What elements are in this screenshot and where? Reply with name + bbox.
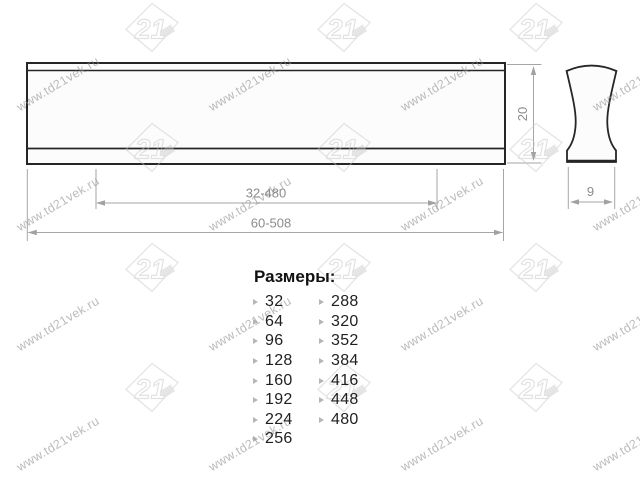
- size-value: 64: [265, 313, 283, 331]
- size-value: 448: [331, 391, 359, 409]
- side-view-profile: [567, 66, 617, 162]
- size-value: 96: [265, 332, 283, 350]
- size-value: 480: [331, 411, 359, 429]
- size-value: 224: [265, 411, 293, 429]
- height-label: 20: [515, 107, 530, 121]
- size-value: 288: [331, 293, 359, 311]
- size-item: 224: [253, 410, 307, 430]
- size-item: 32: [253, 292, 307, 312]
- triangle-bullet-icon: [253, 378, 258, 384]
- size-item: 160: [253, 371, 307, 391]
- depth-label: 9: [587, 184, 594, 199]
- sizes-column-1: 326496128160192224256: [253, 292, 307, 449]
- hole-distance-label: 32-480: [246, 186, 286, 201]
- size-item: 192: [253, 390, 307, 410]
- triangle-bullet-icon: [253, 299, 258, 305]
- triangle-bullet-icon: [253, 319, 258, 325]
- triangle-bullet-icon: [319, 378, 324, 384]
- overall-length-label: 60-508: [251, 216, 291, 231]
- size-value: 256: [265, 430, 293, 448]
- arrow-up-icon: [531, 66, 536, 75]
- arrow-right-icon: [604, 199, 613, 204]
- size-value: 352: [331, 332, 359, 350]
- arrow-down-icon: [531, 152, 536, 161]
- arrow-right-icon: [494, 230, 503, 235]
- size-value: 32: [265, 293, 283, 311]
- triangle-bullet-icon: [319, 397, 324, 403]
- triangle-bullet-icon: [253, 417, 258, 423]
- triangle-bullet-icon: [319, 319, 324, 325]
- size-value: 320: [331, 313, 359, 331]
- triangle-bullet-icon: [319, 338, 324, 344]
- triangle-bullet-icon: [319, 299, 324, 305]
- size-item: 96: [253, 332, 307, 352]
- size-item: 288: [319, 292, 359, 312]
- size-value: 160: [265, 372, 293, 390]
- triangle-bullet-icon: [319, 358, 324, 364]
- size-item: 320: [319, 312, 359, 332]
- size-value: 128: [265, 352, 293, 370]
- size-value: 384: [331, 352, 359, 370]
- size-item: 352: [319, 332, 359, 352]
- size-item: 128: [253, 351, 307, 371]
- triangle-bullet-icon: [253, 436, 258, 442]
- product-drawing-page: www.td21vek.ruwww.td21vek.ruwww.td21vek.…: [0, 0, 640, 480]
- triangle-bullet-icon: [253, 397, 258, 403]
- arrow-left-icon: [570, 199, 579, 204]
- sizes-columns: 326496128160192224256 288320352384416448…: [253, 292, 359, 449]
- side-view: [567, 66, 617, 162]
- size-value: 192: [265, 391, 293, 409]
- triangle-bullet-icon: [253, 358, 258, 364]
- front-view: [27, 63, 505, 164]
- size-item: 64: [253, 312, 307, 332]
- size-item: 384: [319, 351, 359, 371]
- size-value: 416: [331, 372, 359, 390]
- sizes-heading: Размеры:: [254, 267, 359, 287]
- arrow-left-icon: [28, 230, 37, 235]
- size-item: 416: [319, 371, 359, 391]
- sizes-block: Размеры: 326496128160192224256 288320352…: [253, 267, 359, 449]
- sizes-column-2: 288320352384416448480: [319, 292, 359, 449]
- size-item: 480: [319, 410, 359, 430]
- triangle-bullet-icon: [253, 338, 258, 344]
- triangle-bullet-icon: [319, 417, 324, 423]
- size-item: 256: [253, 430, 307, 450]
- arrow-left-icon: [96, 200, 105, 205]
- arrow-right-icon: [428, 200, 437, 205]
- size-item: 448: [319, 390, 359, 410]
